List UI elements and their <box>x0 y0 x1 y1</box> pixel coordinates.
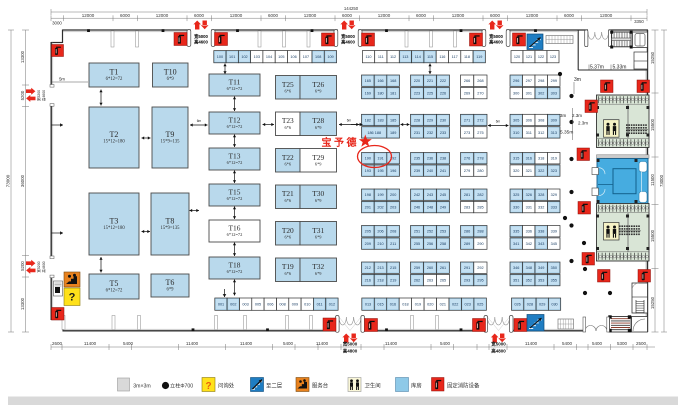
svg-text:5400: 5400 <box>440 341 451 346</box>
svg-text:5.35m: 5.35m <box>560 130 573 136</box>
svg-text:010: 010 <box>304 303 310 307</box>
svg-text:106: 106 <box>290 55 296 59</box>
svg-text:288: 288 <box>477 230 483 234</box>
svg-text:201: 201 <box>365 206 371 210</box>
svg-text:问询处: 问询处 <box>218 382 235 390</box>
svg-text:333: 333 <box>551 206 557 210</box>
svg-text:021: 021 <box>440 303 446 307</box>
svg-text:144250: 144250 <box>344 6 359 11</box>
svg-text:5.37m: 5.37m <box>590 64 604 70</box>
svg-text:6m: 6m <box>496 120 501 124</box>
svg-text:5400: 5400 <box>562 341 573 346</box>
svg-text:261: 261 <box>440 266 446 270</box>
svg-text:260: 260 <box>427 266 433 270</box>
svg-text:341: 341 <box>513 242 519 246</box>
svg-text:2600: 2600 <box>52 341 63 346</box>
svg-text:231: 231 <box>414 131 420 135</box>
svg-text:332: 332 <box>538 206 544 210</box>
svg-text:T6: T6 <box>166 278 175 287</box>
svg-text:120: 120 <box>514 55 520 59</box>
svg-text:118: 118 <box>464 55 470 59</box>
svg-text:198: 198 <box>365 193 371 197</box>
svg-text:T16: T16 <box>229 224 241 233</box>
svg-text:320: 320 <box>513 169 519 173</box>
svg-text:宽5200: 宽5200 <box>36 90 41 101</box>
svg-text:318: 318 <box>538 157 544 161</box>
svg-text:T8: T8 <box>166 217 175 226</box>
svg-text:339: 339 <box>551 230 557 234</box>
svg-text:高4600: 高4600 <box>41 90 46 101</box>
svg-text:220: 220 <box>414 79 420 83</box>
svg-text:6*6: 6*6 <box>285 161 292 166</box>
svg-text:6m: 6m <box>347 119 352 123</box>
svg-text:112: 112 <box>390 55 396 59</box>
svg-text:323: 323 <box>551 169 557 173</box>
svg-text:342: 342 <box>526 242 532 246</box>
svg-text:103: 103 <box>254 55 260 59</box>
svg-text:107: 107 <box>303 55 309 59</box>
svg-text:011: 011 <box>317 303 323 307</box>
svg-text:003: 003 <box>242 303 248 307</box>
svg-text:?: ? <box>205 381 211 392</box>
svg-text:宽5000: 宽5000 <box>343 341 358 348</box>
svg-text:108: 108 <box>315 55 321 59</box>
svg-text:328: 328 <box>538 193 544 197</box>
svg-text:卫生间: 卫生间 <box>365 382 381 390</box>
svg-text:212: 212 <box>365 266 371 270</box>
svg-text:348: 348 <box>526 266 532 270</box>
svg-text:202: 202 <box>377 206 383 210</box>
svg-text:高4600: 高4600 <box>41 261 46 272</box>
svg-text:6000: 6000 <box>194 13 205 18</box>
svg-text:335: 335 <box>513 230 519 234</box>
svg-text:196: 196 <box>390 169 396 173</box>
svg-text:15250: 15250 <box>650 296 655 309</box>
svg-text:268: 268 <box>477 79 483 83</box>
svg-text:T2: T2 <box>110 130 119 139</box>
svg-text:012: 012 <box>329 303 335 307</box>
svg-text:351: 351 <box>513 279 519 283</box>
svg-text:025: 025 <box>477 303 483 307</box>
svg-text:350: 350 <box>551 266 557 270</box>
svg-text:278: 278 <box>477 157 483 161</box>
svg-text:12000: 12000 <box>526 13 539 18</box>
svg-text:服务台: 服务台 <box>312 382 328 390</box>
svg-text:165: 165 <box>365 79 371 83</box>
svg-text:高4800: 高4800 <box>343 348 358 355</box>
svg-text:6000: 6000 <box>416 13 427 18</box>
svg-text:230: 230 <box>440 119 446 123</box>
svg-text:246: 246 <box>414 206 420 210</box>
svg-text:13300: 13300 <box>20 50 25 63</box>
svg-text:199: 199 <box>377 193 383 197</box>
svg-text:186 188: 186 188 <box>367 131 381 135</box>
svg-text:030: 030 <box>551 303 557 307</box>
svg-text:210: 210 <box>377 242 383 246</box>
svg-text:6*9: 6*9 <box>315 161 322 166</box>
svg-text:6000: 6000 <box>342 13 353 18</box>
svg-text:11400: 11400 <box>385 341 398 346</box>
svg-text:5300: 5300 <box>617 341 628 346</box>
svg-text:T11: T11 <box>229 78 241 87</box>
svg-text:022: 022 <box>452 303 458 307</box>
svg-text:206: 206 <box>377 230 383 234</box>
svg-text:312: 312 <box>538 131 544 135</box>
svg-text:6*9: 6*9 <box>315 198 322 203</box>
svg-text:115: 115 <box>427 55 433 59</box>
svg-text:326: 326 <box>526 193 532 197</box>
svg-text:15*12=180: 15*12=180 <box>103 226 125 231</box>
svg-text:345: 345 <box>551 242 557 246</box>
svg-text:12000: 12000 <box>600 13 613 18</box>
svg-text:114: 114 <box>415 55 421 59</box>
svg-text:182: 182 <box>365 119 371 123</box>
svg-text:T25: T25 <box>282 80 294 89</box>
svg-text:5200: 5200 <box>20 261 25 271</box>
svg-text:2.3m: 2.3m <box>578 121 588 126</box>
svg-text:2500: 2500 <box>636 341 647 346</box>
svg-text:313: 313 <box>551 131 557 135</box>
svg-text:272: 272 <box>477 119 483 123</box>
svg-text:241: 241 <box>440 169 446 173</box>
svg-text:11400: 11400 <box>84 341 97 346</box>
svg-text:229: 229 <box>427 119 433 123</box>
svg-text:6*12=72: 6*12=72 <box>227 196 243 201</box>
svg-text:240: 240 <box>427 169 433 173</box>
svg-text:223: 223 <box>414 92 420 96</box>
svg-text:T13: T13 <box>229 152 241 161</box>
svg-text:180: 180 <box>377 92 383 96</box>
svg-text:至二层: 至二层 <box>266 383 283 390</box>
svg-text:301: 301 <box>526 92 532 96</box>
svg-text:6000: 6000 <box>490 13 501 18</box>
svg-text:270: 270 <box>477 92 483 96</box>
svg-text:102: 102 <box>241 55 247 59</box>
svg-text:117: 117 <box>452 55 458 59</box>
svg-text:6*9: 6*9 <box>166 288 174 293</box>
svg-text:12000: 12000 <box>230 13 243 18</box>
svg-text:6000: 6000 <box>564 13 575 18</box>
svg-text:266: 266 <box>464 79 470 83</box>
svg-text:216: 216 <box>365 279 371 283</box>
svg-text:11400: 11400 <box>186 341 199 346</box>
svg-text:222: 222 <box>440 79 446 83</box>
svg-text:T1: T1 <box>110 68 119 77</box>
svg-text:273: 273 <box>464 131 470 135</box>
svg-text:119: 119 <box>476 55 482 59</box>
svg-text:016: 016 <box>390 303 396 307</box>
svg-text:290: 290 <box>477 242 483 246</box>
svg-text:256: 256 <box>427 242 433 246</box>
svg-text:020: 020 <box>427 303 433 307</box>
svg-text:291: 291 <box>464 266 470 270</box>
svg-text:018: 018 <box>402 303 408 307</box>
svg-text:T28: T28 <box>312 116 324 125</box>
svg-text:205: 205 <box>365 230 371 234</box>
svg-text:固定消防设备: 固定消防设备 <box>447 382 480 390</box>
svg-text:109: 109 <box>327 55 333 59</box>
svg-text:185: 185 <box>390 119 396 123</box>
svg-text:73000: 73000 <box>659 174 664 187</box>
svg-text:276: 276 <box>464 157 470 161</box>
svg-text:183: 183 <box>377 119 383 123</box>
svg-text:305: 305 <box>513 119 519 123</box>
svg-text:002: 002 <box>230 303 236 307</box>
svg-text:6000: 6000 <box>268 13 279 18</box>
svg-text:248: 248 <box>427 206 433 210</box>
svg-text:181: 181 <box>390 92 396 96</box>
svg-text:349: 349 <box>538 266 544 270</box>
svg-text:249: 249 <box>440 206 446 210</box>
svg-text:279: 279 <box>464 169 470 173</box>
svg-text:6m: 6m <box>197 119 202 123</box>
svg-text:3000: 3000 <box>52 21 62 26</box>
svg-text:6*6: 6*6 <box>285 89 292 94</box>
svg-text:245: 245 <box>440 193 446 197</box>
svg-text:289: 289 <box>464 242 470 246</box>
svg-text:6*12=72: 6*12=72 <box>227 124 243 129</box>
svg-text:13300: 13300 <box>20 297 25 310</box>
svg-text:232: 232 <box>427 131 433 135</box>
svg-text:209: 209 <box>365 242 371 246</box>
svg-text:331: 331 <box>526 206 532 210</box>
svg-text:028: 028 <box>527 303 533 307</box>
svg-text:?: ? <box>69 292 76 304</box>
svg-text:2.3m: 2.3m <box>572 113 582 118</box>
svg-text:3m×3m: 3m×3m <box>133 384 150 390</box>
svg-text:319: 319 <box>551 157 557 161</box>
svg-text:T32: T32 <box>312 262 324 271</box>
svg-text:336: 336 <box>526 230 532 234</box>
svg-text:110: 110 <box>365 55 371 59</box>
svg-text:6*12=72: 6*12=72 <box>106 289 123 294</box>
svg-text:253: 253 <box>440 230 446 234</box>
svg-text:5.33m: 5.33m <box>613 64 627 70</box>
svg-text:T21: T21 <box>282 189 294 198</box>
svg-text:019: 019 <box>415 303 421 307</box>
svg-text:213: 213 <box>377 266 383 270</box>
svg-text:5400: 5400 <box>283 341 294 346</box>
svg-text:226: 226 <box>440 92 446 96</box>
svg-text:101: 101 <box>229 55 235 59</box>
svg-text:189: 189 <box>390 131 396 135</box>
svg-text:15500: 15500 <box>650 229 655 242</box>
svg-text:286: 286 <box>464 230 470 234</box>
svg-text:281: 281 <box>464 193 470 197</box>
svg-text:251: 251 <box>414 230 420 234</box>
svg-text:265: 265 <box>440 279 446 283</box>
svg-text:6*9: 6*9 <box>315 89 322 94</box>
svg-text:235: 235 <box>414 157 420 161</box>
svg-text:191: 191 <box>377 157 383 161</box>
svg-text:330: 330 <box>513 206 519 210</box>
svg-text:15500: 15500 <box>650 118 655 131</box>
svg-text:T18: T18 <box>229 261 241 270</box>
svg-text:11400: 11400 <box>525 341 538 346</box>
svg-text:6*6: 6*6 <box>285 234 292 239</box>
svg-text:215: 215 <box>390 266 396 270</box>
svg-text:263: 263 <box>427 279 433 283</box>
svg-text:6*9: 6*9 <box>315 125 322 130</box>
svg-text:225: 225 <box>427 92 433 96</box>
svg-text:310: 310 <box>513 131 519 135</box>
svg-text:6*12=72: 6*12=72 <box>227 160 243 165</box>
svg-text:T26: T26 <box>312 80 324 89</box>
svg-text:296: 296 <box>513 79 519 83</box>
svg-text:立柱Φ700: 立柱Φ700 <box>170 382 193 390</box>
svg-text:280: 280 <box>477 169 483 173</box>
svg-text:15250: 15250 <box>650 51 655 64</box>
svg-text:283: 283 <box>464 206 470 210</box>
svg-text:255: 255 <box>414 242 420 246</box>
svg-text:15*9=135: 15*9=135 <box>160 140 180 145</box>
svg-text:190: 190 <box>365 157 371 161</box>
svg-text:218: 218 <box>377 279 383 283</box>
svg-text:275: 275 <box>477 131 483 135</box>
svg-text:243: 243 <box>427 193 433 197</box>
svg-text:104: 104 <box>266 55 272 59</box>
svg-text:T3: T3 <box>110 217 119 226</box>
svg-text:242: 242 <box>414 193 420 197</box>
svg-text:262: 262 <box>414 279 420 283</box>
svg-text:T23: T23 <box>282 116 294 125</box>
svg-text:6*12=72: 6*12=72 <box>227 269 243 274</box>
svg-text:315: 315 <box>513 157 519 161</box>
svg-text:11400: 11400 <box>240 341 253 346</box>
svg-text:169: 169 <box>365 92 371 96</box>
svg-text:252: 252 <box>427 230 433 234</box>
svg-text:023: 023 <box>465 303 471 307</box>
svg-text:113: 113 <box>402 55 408 59</box>
svg-text:259: 259 <box>414 266 420 270</box>
svg-text:258: 258 <box>440 242 446 246</box>
svg-text:116: 116 <box>439 55 445 59</box>
svg-text:343: 343 <box>538 242 544 246</box>
svg-text:295: 295 <box>477 279 483 283</box>
svg-text:6*9: 6*9 <box>315 234 322 239</box>
svg-text:6*6: 6*6 <box>285 271 292 276</box>
svg-text:208: 208 <box>390 230 396 234</box>
svg-text:T10: T10 <box>164 68 177 77</box>
svg-text:12000: 12000 <box>156 13 169 18</box>
svg-text:6*12=72: 6*12=72 <box>227 86 243 91</box>
svg-text:322: 322 <box>538 169 544 173</box>
svg-text:6*12=72: 6*12=72 <box>106 77 123 82</box>
svg-text:T15: T15 <box>229 188 241 197</box>
svg-text:338: 338 <box>538 230 544 234</box>
svg-text:200: 200 <box>390 193 396 197</box>
svg-text:311: 311 <box>526 131 532 135</box>
svg-text:211: 211 <box>390 242 396 246</box>
svg-text:11400: 11400 <box>316 341 329 346</box>
svg-text:库房: 库房 <box>411 382 422 390</box>
svg-text:006: 006 <box>267 303 273 307</box>
svg-text:236: 236 <box>427 157 433 161</box>
svg-text:6*9: 6*9 <box>167 77 175 82</box>
svg-text:6*6: 6*6 <box>285 125 292 130</box>
svg-text:5200: 5200 <box>20 90 25 100</box>
svg-text:高4800: 高4800 <box>491 348 506 355</box>
svg-text:306: 306 <box>526 119 532 123</box>
svg-text:297: 297 <box>526 79 532 83</box>
svg-text:5400: 5400 <box>123 341 134 346</box>
svg-text:282: 282 <box>477 193 483 197</box>
svg-text:5400: 5400 <box>592 341 603 346</box>
svg-text:353: 353 <box>538 279 544 283</box>
svg-text:6000: 6000 <box>120 13 131 18</box>
svg-text:193: 193 <box>365 169 371 173</box>
svg-text:302: 302 <box>538 92 544 96</box>
svg-text:221: 221 <box>427 79 433 83</box>
svg-text:6*6: 6*6 <box>285 198 292 203</box>
svg-text:3m: 3m <box>574 77 581 83</box>
svg-text:宽5200: 宽5200 <box>36 261 41 272</box>
svg-text:12000: 12000 <box>304 13 317 18</box>
svg-text:233: 233 <box>440 131 446 135</box>
svg-text:高4600: 高4600 <box>194 39 208 46</box>
svg-text:355: 355 <box>551 279 557 283</box>
svg-text:122: 122 <box>538 55 544 59</box>
svg-text:329: 329 <box>551 193 557 197</box>
svg-text:166: 166 <box>377 79 383 83</box>
svg-text:195: 195 <box>377 169 383 173</box>
svg-text:309: 309 <box>551 119 557 123</box>
svg-text:123: 123 <box>550 55 556 59</box>
svg-text:352: 352 <box>526 279 532 283</box>
svg-text:325: 325 <box>513 193 519 197</box>
svg-text:269: 269 <box>464 92 470 96</box>
svg-text:346: 346 <box>513 266 519 270</box>
svg-text:T5: T5 <box>110 279 119 288</box>
svg-text:008: 008 <box>279 303 285 307</box>
svg-text:121: 121 <box>526 55 532 59</box>
svg-text:6*12=72: 6*12=72 <box>227 232 243 237</box>
svg-text:111: 111 <box>378 55 384 59</box>
svg-text:298: 298 <box>538 79 544 83</box>
svg-text:宽5000: 宽5000 <box>491 341 506 348</box>
svg-text:3350: 3350 <box>634 19 644 24</box>
svg-text:219: 219 <box>390 279 396 283</box>
svg-text:T12: T12 <box>229 116 241 125</box>
svg-text:12000: 12000 <box>452 13 465 18</box>
svg-text:321: 321 <box>526 169 532 173</box>
svg-text:239: 239 <box>414 169 420 173</box>
svg-text:宝 予 德: 宝 予 德 <box>322 136 357 149</box>
svg-text:15*12=180: 15*12=180 <box>103 140 125 145</box>
svg-text:228: 228 <box>414 119 420 123</box>
svg-text:026: 026 <box>514 303 520 307</box>
svg-text:73000: 73000 <box>6 174 11 187</box>
svg-text:168: 168 <box>390 79 396 83</box>
svg-text:271: 271 <box>464 119 470 123</box>
svg-text:292: 292 <box>477 266 483 270</box>
svg-text:12000: 12000 <box>82 13 95 18</box>
svg-text:005: 005 <box>255 303 261 307</box>
svg-text:11500: 11500 <box>650 174 655 186</box>
svg-text:299: 299 <box>551 79 557 83</box>
svg-text:T19: T19 <box>282 262 294 271</box>
svg-text:15*9=135: 15*9=135 <box>160 226 180 231</box>
svg-text:238: 238 <box>440 157 446 161</box>
svg-text:029: 029 <box>539 303 545 307</box>
svg-text:5m: 5m <box>59 77 65 82</box>
svg-text:3m: 3m <box>560 113 567 118</box>
svg-text:013: 013 <box>365 303 371 307</box>
svg-text:高4600: 高4600 <box>341 39 355 46</box>
svg-text:12000: 12000 <box>378 13 391 18</box>
svg-text:303: 303 <box>551 92 557 96</box>
svg-text:001: 001 <box>218 303 224 307</box>
